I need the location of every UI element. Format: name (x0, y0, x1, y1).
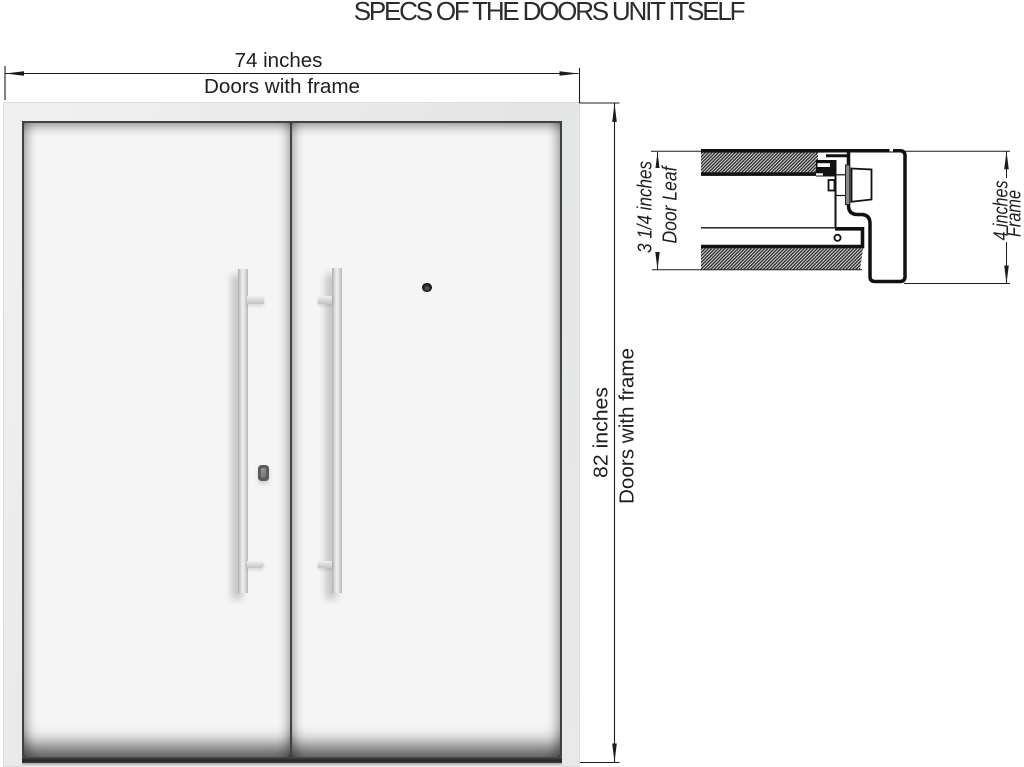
svg-text:Door Leaf: Door Leaf (660, 164, 682, 243)
svg-text:3 1/4 inches: 3 1/4 inches (635, 161, 657, 253)
svg-text:82 inches: 82 inches (590, 387, 613, 478)
svg-text:Frame: Frame (1004, 190, 1024, 237)
svg-text:74 inches: 74 inches (235, 49, 323, 72)
svg-text:Doors with frame: Doors with frame (204, 75, 360, 98)
svg-text:Doors with frame: Doors with frame (616, 348, 639, 504)
